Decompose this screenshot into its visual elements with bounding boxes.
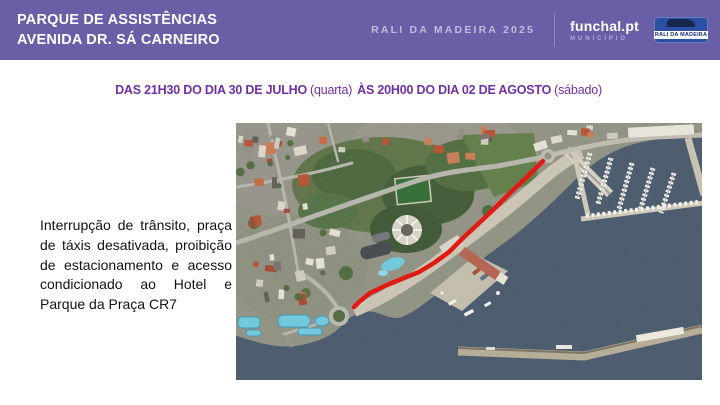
header-right: RALI DA MADEIRA 2025 funchal.pt MUNICÍPI… (371, 13, 708, 47)
satellite-map-svg (236, 123, 702, 380)
funchal-logo: funchal.pt MUNICÍPIO (570, 19, 639, 42)
header-divider (554, 13, 555, 47)
title-line-2: AVENIDA DR. SÁ CARNEIRO (17, 30, 220, 50)
rally-plate-badge: RALI DA MADEIRA (654, 17, 708, 43)
closure-schedule: DAS 21H30 DO DIA 30 DE JULHO(quarta)ÀS 2… (0, 83, 720, 97)
title-line-1: PARQUE DE ASSISTÊNCIAS (17, 10, 220, 30)
funchal-logo-name: funchal.pt (570, 19, 639, 33)
slide: PARQUE DE ASSISTÊNCIAS AVENIDA DR. SÁ CA… (0, 0, 720, 405)
restrictions-description: Interrupção de trânsito, praça de táxis … (40, 216, 232, 315)
header-bar: PARQUE DE ASSISTÊNCIAS AVENIDA DR. SÁ CA… (0, 0, 720, 60)
satellite-map-image (236, 123, 702, 380)
schedule-start-bold: DAS 21H30 DO DIA 30 DE JULHO (115, 83, 307, 97)
funchal-logo-subtitle: MUNICÍPIO (570, 36, 639, 42)
assistance-park-title: PARQUE DE ASSISTÊNCIAS AVENIDA DR. SÁ CA… (17, 10, 220, 50)
rally-badge-label: RALI DA MADEIRA (654, 32, 708, 38)
rally-car-icon (667, 19, 695, 27)
event-title: RALI DA MADEIRA 2025 (371, 24, 535, 36)
map-grain-overlay (236, 123, 702, 380)
schedule-start-weekday: (quarta) (310, 83, 352, 97)
schedule-end-weekday: (sábado) (554, 83, 602, 97)
schedule-end-bold: ÀS 20H00 DO DIA 02 DE AGOSTO (357, 83, 551, 97)
